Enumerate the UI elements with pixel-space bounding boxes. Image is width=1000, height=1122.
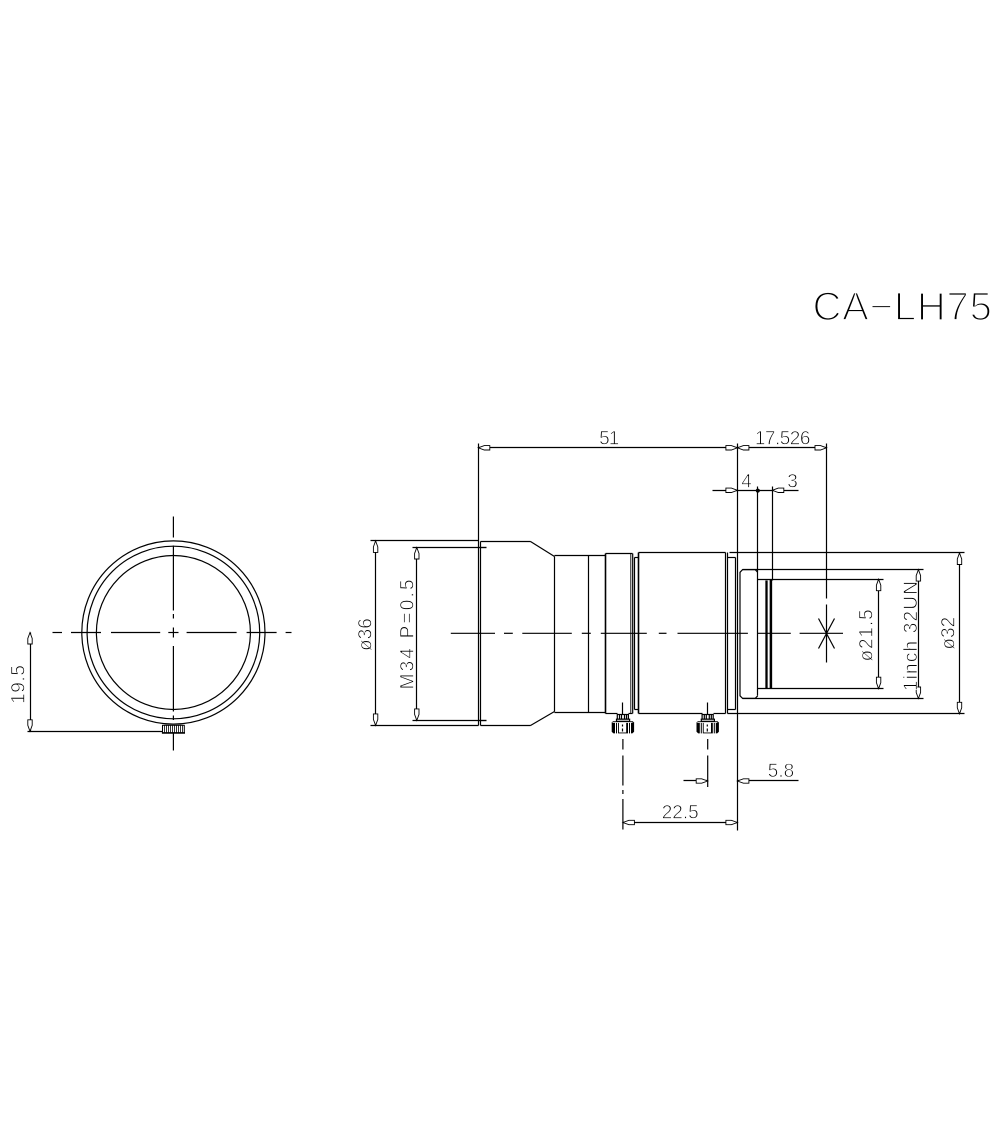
svg-text:ø32: ø32 (938, 617, 959, 650)
svg-text:51: 51 (599, 429, 619, 450)
svg-text:CA−LH75: CA−LH75 (813, 285, 993, 329)
svg-text:4: 4 (741, 471, 752, 492)
svg-text:22.5: 22.5 (662, 803, 699, 824)
svg-text:19.5: 19.5 (9, 665, 30, 704)
svg-text:5.8: 5.8 (768, 761, 794, 782)
svg-text:3: 3 (787, 471, 798, 492)
svg-text:17.526: 17.526 (755, 429, 810, 450)
svg-text:M34 P=0.5: M34 P=0.5 (397, 577, 418, 689)
svg-text:ø36: ø36 (356, 618, 377, 651)
svg-text:1inch 32UN: 1inch 32UN (901, 580, 922, 691)
svg-text:ø21.5: ø21.5 (857, 608, 878, 661)
